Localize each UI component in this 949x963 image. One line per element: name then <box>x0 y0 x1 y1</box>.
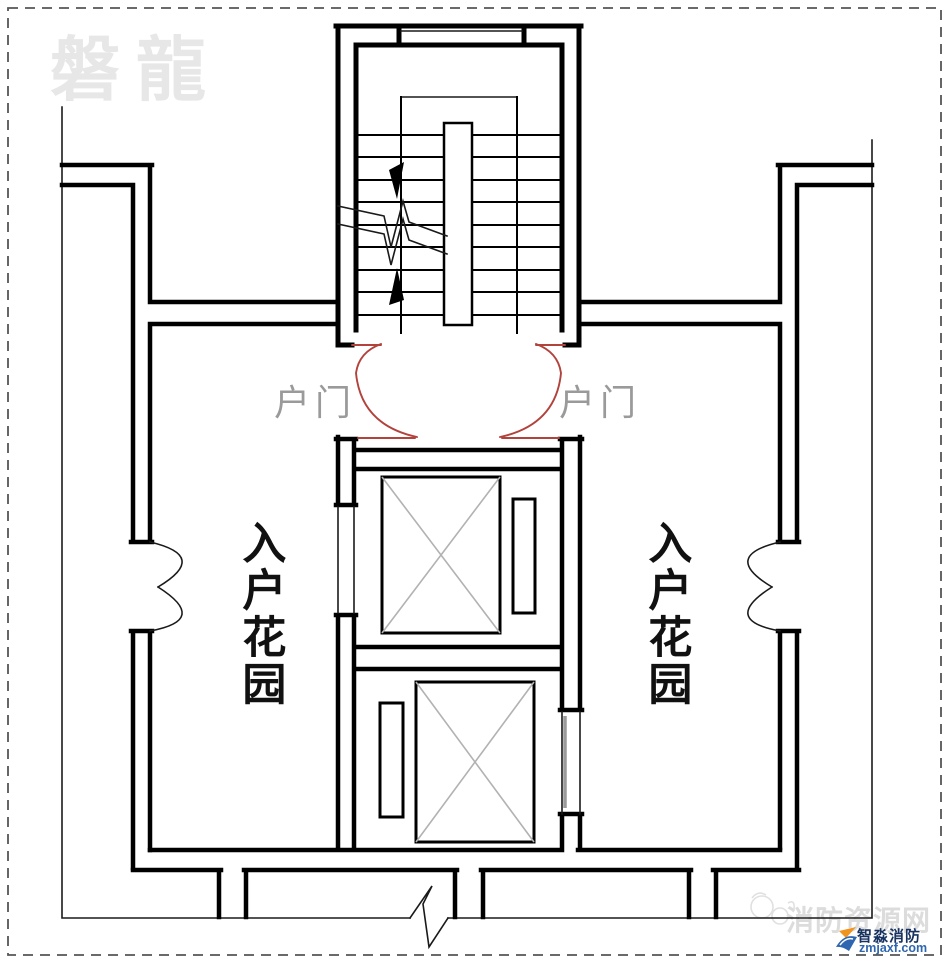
entry-door-swing-left <box>352 344 417 438</box>
counterweight-upper <box>513 499 535 613</box>
casement-window-right <box>748 542 780 631</box>
entry-garden-label-left: 入户花园 <box>235 520 283 720</box>
top-left-watermark: 磐龍 <box>50 14 222 115</box>
brand-block: 智淼消防 zmjaxf.com <box>836 925 946 959</box>
casement-window-left <box>150 542 182 631</box>
brand-domain-text: zmjaxf.com <box>859 941 927 955</box>
stair-landing-lines <box>401 31 522 97</box>
stair-flight-divider <box>444 123 472 325</box>
floor-plan-canvas: 消防资源网 <box>0 0 949 963</box>
watermark-doodle-sketch <box>751 893 794 924</box>
floor-plan-drawing <box>0 0 949 963</box>
entry-door-label-left: 户门 <box>274 374 356 426</box>
entry-door-swing-right <box>500 344 565 438</box>
entry-door-label-right: 户门 <box>559 374 641 426</box>
left-wing-walls <box>62 165 338 868</box>
right-wing-walls <box>579 165 872 866</box>
entry-garden-label-right: 入户花园 <box>641 520 689 720</box>
break-mark-bottom <box>410 886 448 947</box>
brand-logo-icon <box>836 925 858 953</box>
counterweight-lower <box>380 703 403 817</box>
elevator-shaft-upper <box>382 477 535 633</box>
elevator-shaft-lower <box>380 682 534 842</box>
